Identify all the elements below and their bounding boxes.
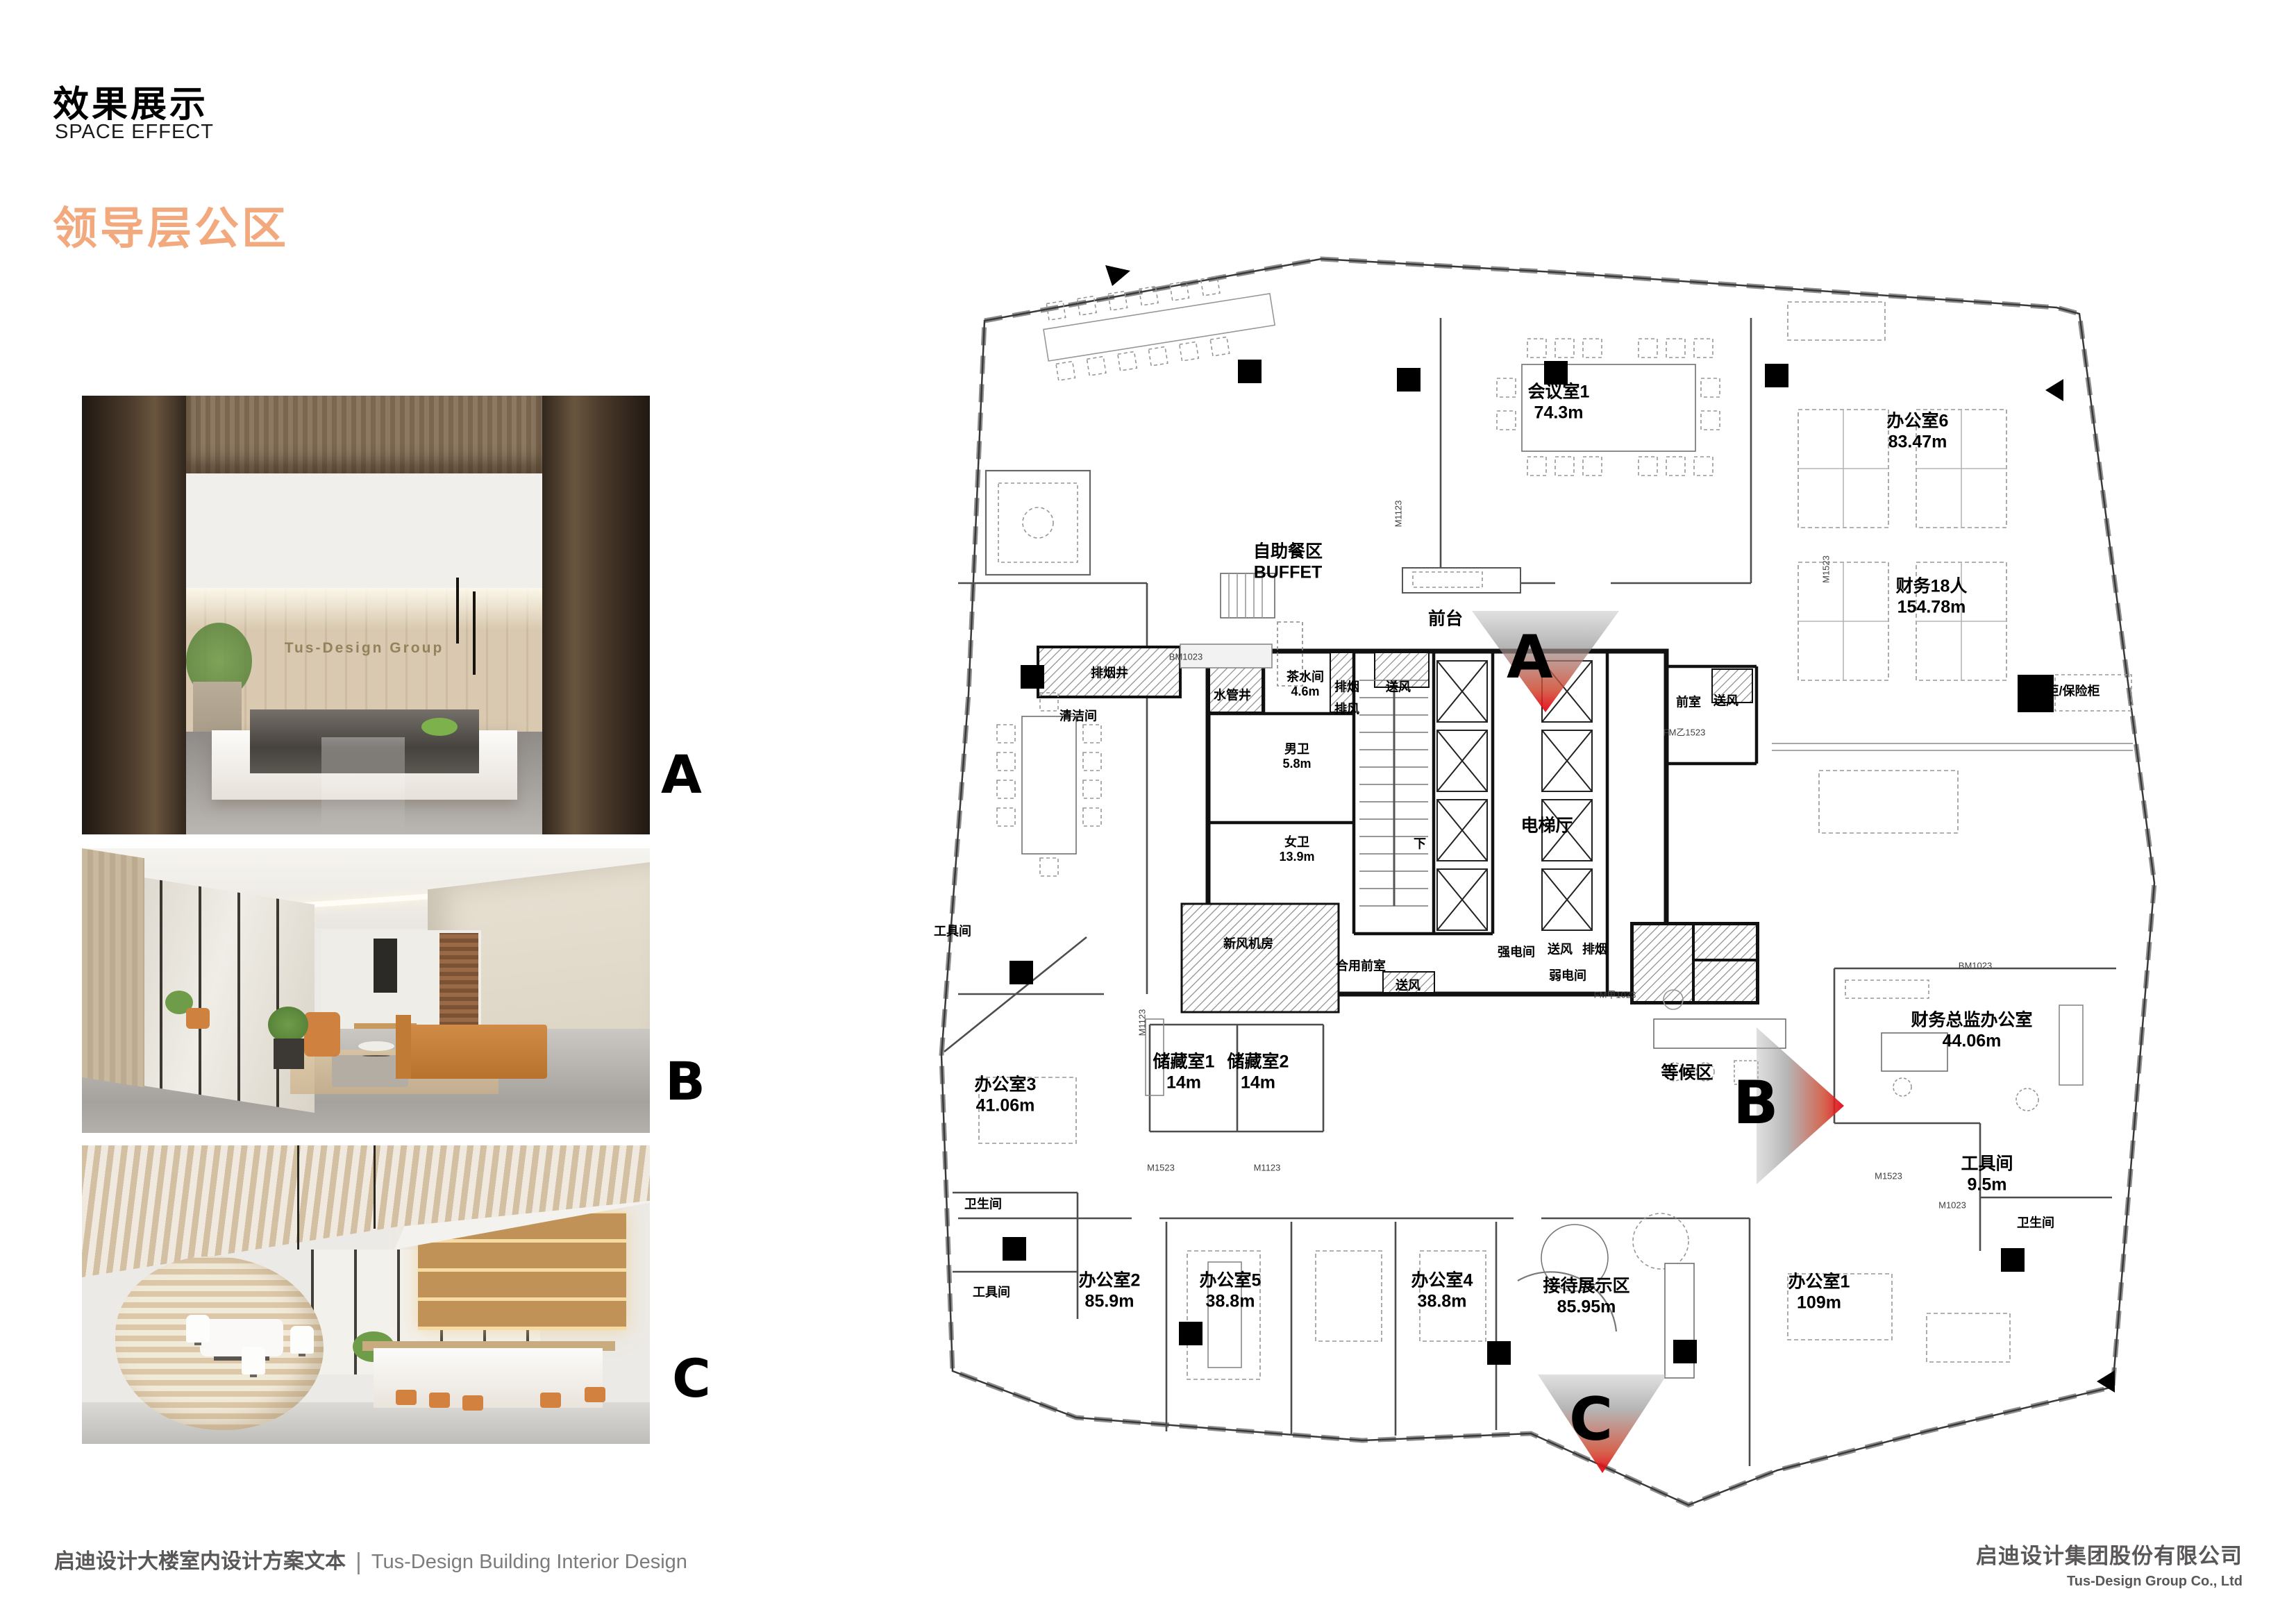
plant <box>268 1007 308 1043</box>
white-chair <box>186 1315 210 1343</box>
room-label: 保险柜/保险柜 <box>2021 684 2100 698</box>
render-photo-b <box>82 848 650 1133</box>
artwork <box>374 939 397 993</box>
door-tag: M1123 <box>1137 1009 1148 1036</box>
footer-company-en: Tus-Design Group Co., Ltd <box>1976 1574 2243 1590</box>
room-label: 男卫5.8m <box>1282 742 1311 771</box>
room-label: 财务18人154.78m <box>1896 577 1968 618</box>
room-label: 送风 <box>1396 978 1421 993</box>
room-label: 工具间 <box>934 924 971 939</box>
room-label: 下 <box>1414 836 1426 851</box>
cove-light <box>186 588 542 630</box>
page-subtitle: SPACE EFFECT <box>55 121 214 144</box>
presentation-page: { "header":{ "title_cn":"效果展示", "title_e… <box>0 0 2296 1623</box>
footer-doc-title-en: Tus-Design Building Interior Design <box>371 1551 687 1573</box>
wood-ceiling-beam <box>186 396 542 473</box>
room-label: 自助餐区BUFFET <box>1253 542 1323 583</box>
room-label: 送风 <box>1386 680 1411 694</box>
room-label: 强电间 <box>1498 945 1535 959</box>
pendant-light <box>374 1145 376 1229</box>
room-label: 办公室285.9m <box>1079 1271 1141 1312</box>
pendant-light <box>456 578 459 644</box>
room-label: 排烟井 <box>1091 666 1128 680</box>
room-label: 等候区 <box>1661 1063 1713 1084</box>
lobby-scene: Tus-Design Group <box>186 473 542 834</box>
footer-doc-title-cn: 启迪设计大楼室内设计方案文本 <box>54 1550 346 1573</box>
room-label: 茶水间4.6m <box>1287 670 1324 699</box>
orange-stool <box>462 1395 483 1411</box>
room-label: 女卫13.9m <box>1279 835 1314 864</box>
room-label: 卫生间 <box>2017 1216 2054 1230</box>
orange-stool <box>540 1393 561 1408</box>
room-label: 排烟 <box>1334 680 1359 694</box>
white-chair <box>290 1326 314 1354</box>
room-label: 会议室174.3m <box>1528 382 1590 423</box>
room-label: 排烟 <box>1582 942 1607 957</box>
sofa-arm <box>396 1015 411 1079</box>
page-title: 效果展示 <box>53 75 208 127</box>
room-label: 清洁间 <box>1059 709 1097 723</box>
room-label: 工具间 <box>973 1285 1010 1300</box>
door-tag: M1523 <box>1875 1171 1902 1181</box>
room-label: 卫生间 <box>964 1197 1002 1211</box>
room-label: 办公室1109m <box>1788 1272 1850 1313</box>
room-label: 财务总监办公室44.06m <box>1911 1011 2032 1052</box>
room-label: 储藏室114m <box>1153 1052 1215 1093</box>
planter <box>274 1038 304 1069</box>
room-label: 办公室683.47m <box>1887 412 1949 453</box>
room-label: 接待展示区85.95m <box>1543 1277 1629 1318</box>
floor-plan: 会议室174.3m办公室683.47m财务18人154.78m自助餐区BUFFE… <box>916 236 2159 1517</box>
lounge-chair <box>304 1012 340 1057</box>
door-tag: FM甲1023 <box>1594 988 1636 1001</box>
door-tag: M1123 <box>1254 1163 1281 1173</box>
room-label: 排风 <box>1334 702 1359 716</box>
view-marker-letter-a: A <box>1507 628 1553 687</box>
orange-stool <box>396 1390 417 1405</box>
room-label: 弱电间 <box>1549 968 1586 983</box>
render-photo-c <box>82 1145 650 1444</box>
room-label: 新风机房 <box>1223 936 1273 951</box>
side-table <box>358 1041 394 1051</box>
footer-divider: | <box>346 1549 371 1575</box>
view-marker-letter-b: B <box>1733 1073 1779 1133</box>
section-title: 领导层公区 <box>53 193 289 257</box>
footer-company-cn: 启迪设计集团股份有限公司 <box>1976 1538 2243 1570</box>
room-label: 前台 <box>1428 609 1463 630</box>
pendant-light <box>473 591 476 675</box>
wood-portal-left <box>82 396 186 834</box>
room-label: 电梯厅 <box>1520 816 1573 836</box>
room-label: 办公室341.06m <box>975 1075 1037 1116</box>
wood-portal-right <box>542 396 650 834</box>
room-label: 送风 <box>1548 942 1573 957</box>
desk-plant <box>421 718 458 736</box>
door-tag: M1523 <box>1821 555 1832 583</box>
photo-label-a: A <box>661 748 702 801</box>
floor-reflection <box>321 737 405 834</box>
door-tag: M1023 <box>1938 1200 1966 1211</box>
room-label: 送风 <box>1713 693 1738 708</box>
photo-label-b: B <box>665 1055 705 1108</box>
room-label: 工具间9.5m <box>1961 1154 2013 1195</box>
door-tag: BM1023 <box>1959 961 1992 971</box>
photo-label-c: C <box>672 1352 711 1405</box>
orange-sofa <box>408 1025 547 1079</box>
orange-chair <box>186 1008 210 1029</box>
room-label: 办公室538.8m <box>1200 1271 1262 1312</box>
orange-stool <box>585 1387 605 1402</box>
wood-wall <box>82 848 144 1087</box>
room-label: 合用前室 <box>1336 959 1386 973</box>
footer-left: 启迪设计大楼室内设计方案文本|Tus-Design Building Inter… <box>54 1544 687 1576</box>
door-tag: FM乙1523 <box>1664 725 1706 739</box>
pendant-light <box>297 1145 299 1250</box>
footer-right: 启迪设计集团股份有限公司 Tus-Design Group Co., Ltd <box>1976 1538 2243 1590</box>
floor-plan-drawing <box>916 236 2159 1517</box>
door-tag: BM1023 <box>1169 652 1203 662</box>
room-label: 水管井 <box>1214 688 1251 703</box>
white-chair <box>242 1347 265 1374</box>
render-photo-a: Tus-Design Group <box>82 396 650 834</box>
slat-screen <box>439 933 478 1030</box>
orange-stool <box>429 1393 450 1408</box>
door-tag: M1523 <box>1147 1163 1175 1173</box>
room-label: 前室 <box>1676 695 1701 709</box>
door-tag: M1123 <box>1393 501 1404 528</box>
room-label: 储藏室214m <box>1227 1052 1289 1093</box>
view-marker-letter-c: C <box>1569 1390 1613 1449</box>
room-label: 办公室438.8m <box>1411 1271 1473 1312</box>
